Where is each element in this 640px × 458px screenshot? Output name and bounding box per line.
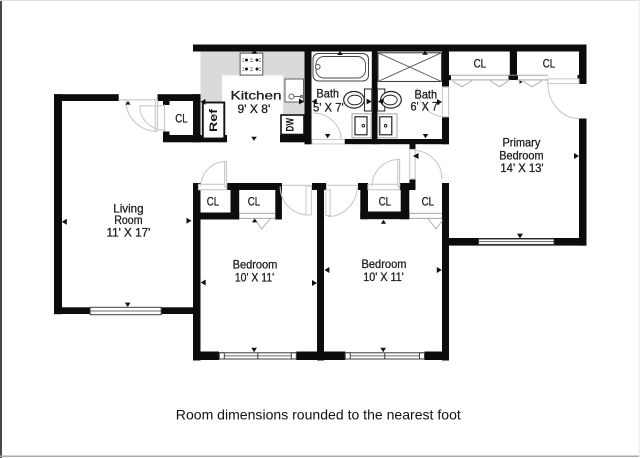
svg-text:11' X 17': 11' X 17' <box>106 226 150 240</box>
svg-text:9' X 8': 9' X 8' <box>238 102 271 116</box>
svg-text:Ref: Ref <box>208 109 220 132</box>
svg-text:Kitchen: Kitchen <box>231 89 282 103</box>
svg-text:5' X 7': 5' X 7' <box>313 100 344 114</box>
svg-text:14' X 13': 14' X 13' <box>500 161 543 175</box>
svg-text:CL: CL <box>422 194 435 208</box>
svg-text:CL: CL <box>543 57 556 71</box>
svg-text:DW: DW <box>285 118 297 132</box>
svg-text:Bedroom: Bedroom <box>233 257 278 271</box>
svg-text:CL: CL <box>248 195 261 209</box>
svg-text:CL: CL <box>207 195 220 209</box>
svg-text:6' X 7': 6' X 7' <box>410 100 440 114</box>
svg-text:Bath: Bath <box>316 86 339 100</box>
svg-text:10' X 11': 10' X 11' <box>363 270 404 284</box>
svg-text:10' X 11': 10' X 11' <box>235 270 274 284</box>
svg-text:Room dimensions rounded to the: Room dimensions rounded to the nearest f… <box>176 406 461 422</box>
svg-text:CL: CL <box>175 112 188 126</box>
svg-text:CL: CL <box>379 194 392 208</box>
svg-text:Bedroom: Bedroom <box>362 257 407 271</box>
svg-text:CL: CL <box>474 57 487 71</box>
